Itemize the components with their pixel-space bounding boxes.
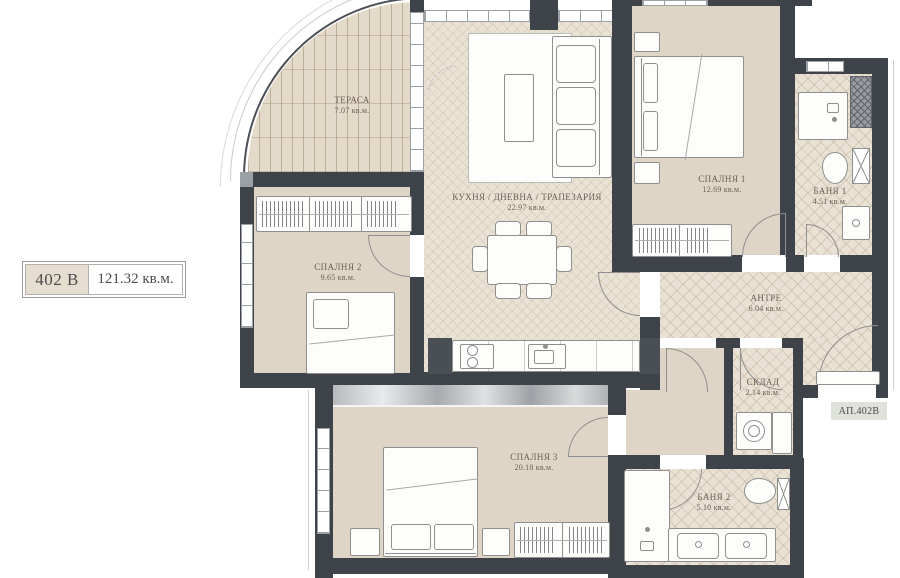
wall-storage-right [793,338,803,458]
bed-bedroom2 [306,292,395,374]
shower-bath1 [798,92,848,140]
wall-bath2-right [790,458,804,578]
wardrobe-bedroom1 [632,224,732,257]
burner-2 [467,357,478,368]
wall-bedroom2-right-upper [410,172,424,235]
nightstand-b1-top [634,32,660,52]
wall-top-pillar [530,0,558,30]
wall-bath2-top-a [608,455,660,469]
room-name: СПАЛНЯ 3 [510,452,558,462]
sink-faucet [543,344,548,349]
wall-entry-b [876,385,888,398]
kitchen-appliance-left [428,338,452,374]
bed3-pillow-1 [391,524,431,550]
dining-chair-right [556,246,572,272]
bed2-blanket-fold [309,335,395,345]
burner-1 [467,345,478,356]
room-name: БАНЯ 2 [697,492,732,502]
room-area: 20.18 кв.м. [510,463,558,472]
terrace-sliding-window [410,12,424,172]
sofa-cushion-1 [556,45,596,83]
shower2-drain [645,527,650,532]
door-leaf-corridor [666,348,667,392]
door-leaf-living [598,272,640,273]
floor-corridor2 [626,390,660,455]
door-leaf-bedroom2 [368,235,410,236]
room-name: СПАЛНЯ 2 [314,262,362,272]
room-area: 12.69 кв.м. [698,185,746,194]
wall-terrace-bottom [240,172,422,187]
wall-hall-top-a [612,255,742,272]
room-area: 9.65 кв.м. [314,273,362,282]
terrace-deck [248,2,418,172]
wall-cap [240,172,253,187]
shower1-head [827,103,839,113]
wall-bedroom3-bottom [315,558,615,574]
door-opening-bedroom3 [608,415,626,455]
nightstand-b3-left [350,528,380,556]
coffee-table [504,74,534,142]
bed-bedroom3 [383,447,478,557]
dining-chair-bottom-1 [495,283,521,299]
bed1-pillow-1 [643,63,658,103]
apartment-label-box: 402 B 121.32 кв.м. [22,261,186,298]
bed1-pillow-2 [643,111,658,151]
nightstand-b1-bottom [634,162,660,184]
sofa [552,36,612,178]
sink-basin [534,350,554,364]
bedroom3-window [317,428,330,534]
shower-bath2 [624,470,670,562]
door-opening-bedroom1 [742,255,786,272]
wall-bath2-bottom [608,565,804,578]
wall-hall-bottom-a [716,338,740,348]
wardrobe1-rail [635,240,729,241]
shower2-head [640,541,654,551]
bed-bedroom1 [634,56,744,158]
wall-bedroom2-right-lower [410,277,424,390]
bed1-headboard-line [641,58,642,156]
storage-counter [772,412,792,454]
room-label-bedroom2: СПАЛНЯ 2 9.65 кв.м. [314,262,362,282]
room-label-bath1: БАНЯ 1 4.51 кв.м. [813,186,848,206]
door-opening-storage [740,338,782,348]
wall-living-bedroom1 [612,0,632,262]
washer-drum-inner [748,425,760,437]
door-opening-bedroom2 [410,235,424,277]
room-label-storage: СКЛАД 2.14 кв.м. [746,377,781,397]
vanity-faucet-1 [695,541,702,548]
vanity-bath2 [668,528,776,562]
dining-chair-left [472,246,488,272]
room-label-terrace: ТЕРАСА 7.07 кв.м. [334,95,369,115]
room-name: АНТРЕ [749,293,784,303]
bath1-window [806,61,844,72]
room-label-bath2: БАНЯ 2 5.10 кв.м. [697,492,732,512]
door-opening-bath1 [806,255,840,272]
bed3-pillow-2 [434,524,474,550]
wardrobe2-rail [259,214,409,215]
door-opening-living [640,272,660,317]
living-top-window-left [424,10,530,22]
room-area: 6.04 кв.м. [749,304,784,313]
door-leaf-bedroom3 [568,456,608,457]
bed3-footboard-line [385,553,476,554]
apartment-tag: АП.402В [831,402,887,420]
room-area: 22.97 кв.м. [452,203,602,212]
nightstand-b3-right [482,528,510,556]
bedroom2-window [241,224,253,328]
apartment-total-area: 121.32 кв.м. [89,264,183,295]
wall-storage-left [724,348,733,455]
washing-machine-storage [736,412,772,450]
entrance-door-leaf [816,371,880,385]
floorplan-canvas: ТЕРАСА 7.07 кв.м. КУХНЯ / ДНЕВНА / ТРАПЕ… [0,0,900,578]
wall-living-hall-upper [640,262,660,272]
door-leaf-storage [740,348,741,390]
room-area: 7.07 кв.м. [334,106,369,115]
sofa-cushion-2 [556,87,596,125]
exterior-outline-left [308,390,309,570]
door-opening-entrance [818,385,876,398]
sink1-faucet [852,219,860,227]
door-leaf-bath1 [806,224,807,257]
duct-bath2 [777,478,790,510]
wardrobe-bedroom3 [514,522,610,558]
room-name: ТЕРАСА [334,95,369,105]
shower1-drain [832,117,837,122]
bed3-blanket-fold [386,478,477,490]
wall-entry-a [795,385,818,398]
room-name: СПАЛНЯ 1 [698,174,746,184]
living-top-window-right [558,10,614,22]
bed2-pillow [313,299,349,329]
sliding-wardrobe-mirror [333,385,608,407]
door-leaf-bedroom1 [785,213,786,257]
wall-hall-top-c [840,255,872,272]
kitchen-appliance-right [640,338,660,374]
room-name: КУХНЯ / ДНЕВНА / ТРАПЕЗАРИЯ [452,192,602,202]
sink-bath1 [842,206,870,240]
room-label-hall: АНТРЕ 6.04 кв.м. [749,293,784,313]
bed1-blanket-fold [685,54,703,161]
room-area: 5.10 кв.м. [697,503,732,512]
wardrobe3-rail [517,540,607,541]
room-name: БАНЯ 1 [813,186,848,196]
wall-bath2-top-b [706,455,802,469]
duct-shaft-bath1 [850,76,872,128]
room-name: СКЛАД [746,377,781,387]
apartment-number: 402 B [25,264,89,295]
wall-hall-top-b [786,255,804,272]
room-area: 2.14 кв.м. [746,388,781,397]
sofa-cushion-3 [556,129,596,167]
room-area: 4.51 кв.м. [813,197,848,206]
wardrobe-bedroom2 [256,196,412,232]
room-label-bedroom3: СПАЛНЯ 3 20.18 кв.м. [510,452,558,472]
washing-machine-bath1 [852,148,870,184]
sofa-back-line [599,39,600,175]
dining-chair-bottom-2 [526,283,552,299]
vanity-faucet-2 [743,541,750,548]
door-opening-bath2 [660,455,706,469]
exterior-outline-right [893,60,894,390]
room-label-bedroom1: СПАЛНЯ 1 12.69 кв.м. [698,174,746,194]
room-label-kitchen: КУХНЯ / ДНЕВНА / ТРАПЕЗАРИЯ 22.97 кв.м. [452,192,602,212]
dining-table [487,235,557,285]
wall-bedroom3-right-upper [608,385,626,415]
bedroom1-top-window [642,0,708,6]
